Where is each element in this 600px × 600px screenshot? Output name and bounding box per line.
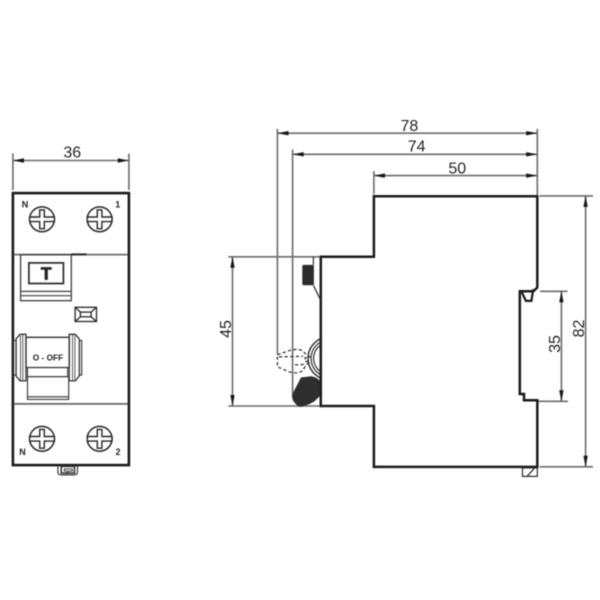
svg-text:N: N [22, 200, 29, 210]
svg-text:78: 78 [401, 118, 419, 135]
svg-text:82: 82 [571, 320, 588, 338]
svg-text:50: 50 [448, 161, 466, 178]
svg-text:O - OFF: O - OFF [33, 352, 63, 362]
svg-text:N: N [19, 447, 26, 457]
svg-text:T: T [41, 264, 52, 284]
svg-text:74: 74 [408, 138, 426, 155]
svg-text:35: 35 [547, 335, 564, 353]
svg-text:2: 2 [115, 447, 120, 457]
svg-text:1: 1 [115, 200, 120, 210]
svg-text:45: 45 [218, 320, 235, 338]
svg-text:36: 36 [63, 144, 81, 161]
